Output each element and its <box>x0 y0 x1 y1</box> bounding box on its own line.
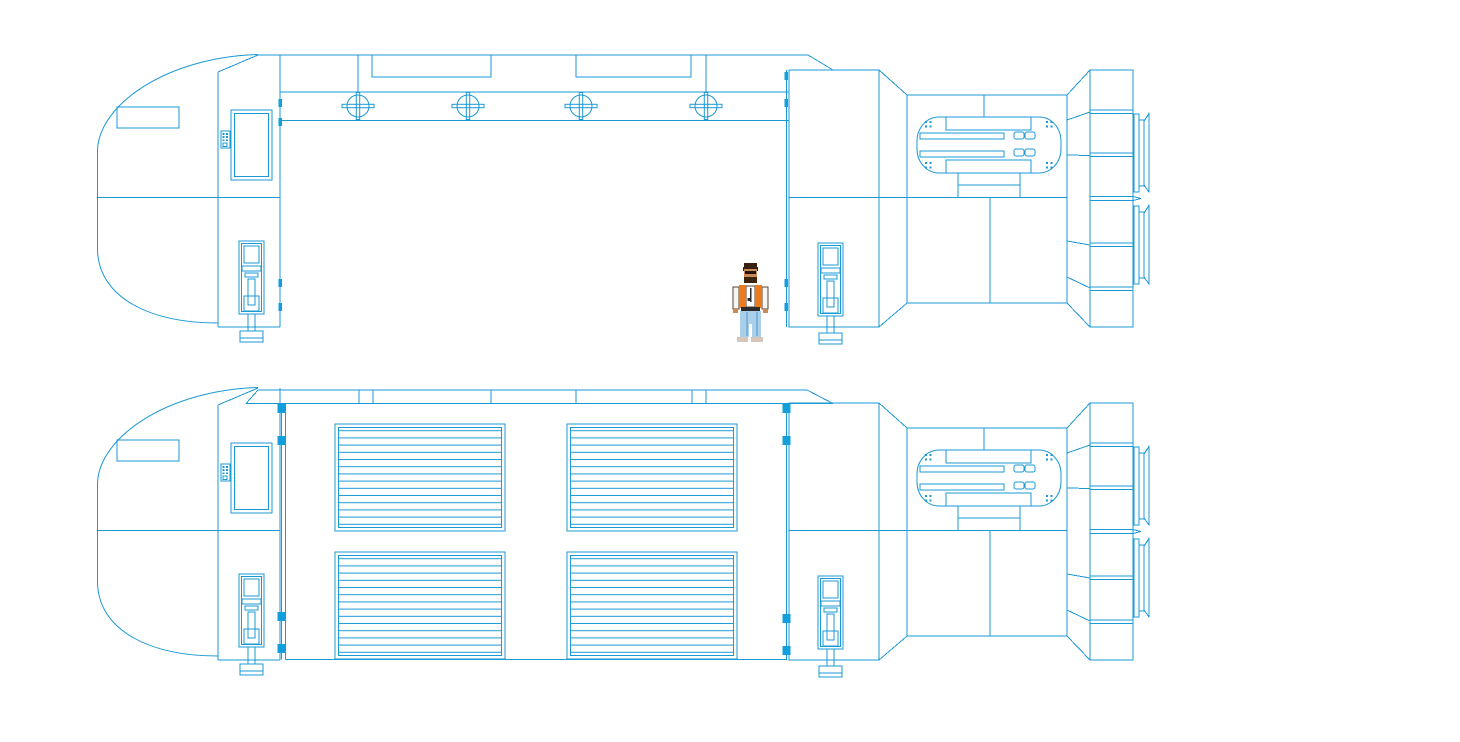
sprite-shoe <box>737 337 748 342</box>
sprite-vest <box>755 285 762 308</box>
sprite-belt <box>741 307 760 311</box>
blueprint-canvas <box>0 0 1460 742</box>
dorsal-spine <box>258 55 833 121</box>
person-sprite <box>733 263 768 342</box>
spaceship-drawing <box>0 0 1460 742</box>
sprite-hand <box>763 309 768 313</box>
sprite-arm <box>733 287 739 309</box>
spine-recess-panel <box>372 55 491 77</box>
sprite-hand <box>733 309 738 313</box>
sprite-arm <box>762 287 768 309</box>
spine-recess-panel <box>576 55 691 77</box>
ship-lower-view <box>98 388 1150 678</box>
ship-upper-view <box>98 55 1150 345</box>
lineart-root <box>98 55 1150 678</box>
sprite-shoe <box>751 337 763 342</box>
sprite-beard <box>744 277 757 283</box>
dorsal-rail <box>246 390 833 404</box>
sprite-shades <box>745 271 756 274</box>
sprite-vest <box>739 285 746 308</box>
